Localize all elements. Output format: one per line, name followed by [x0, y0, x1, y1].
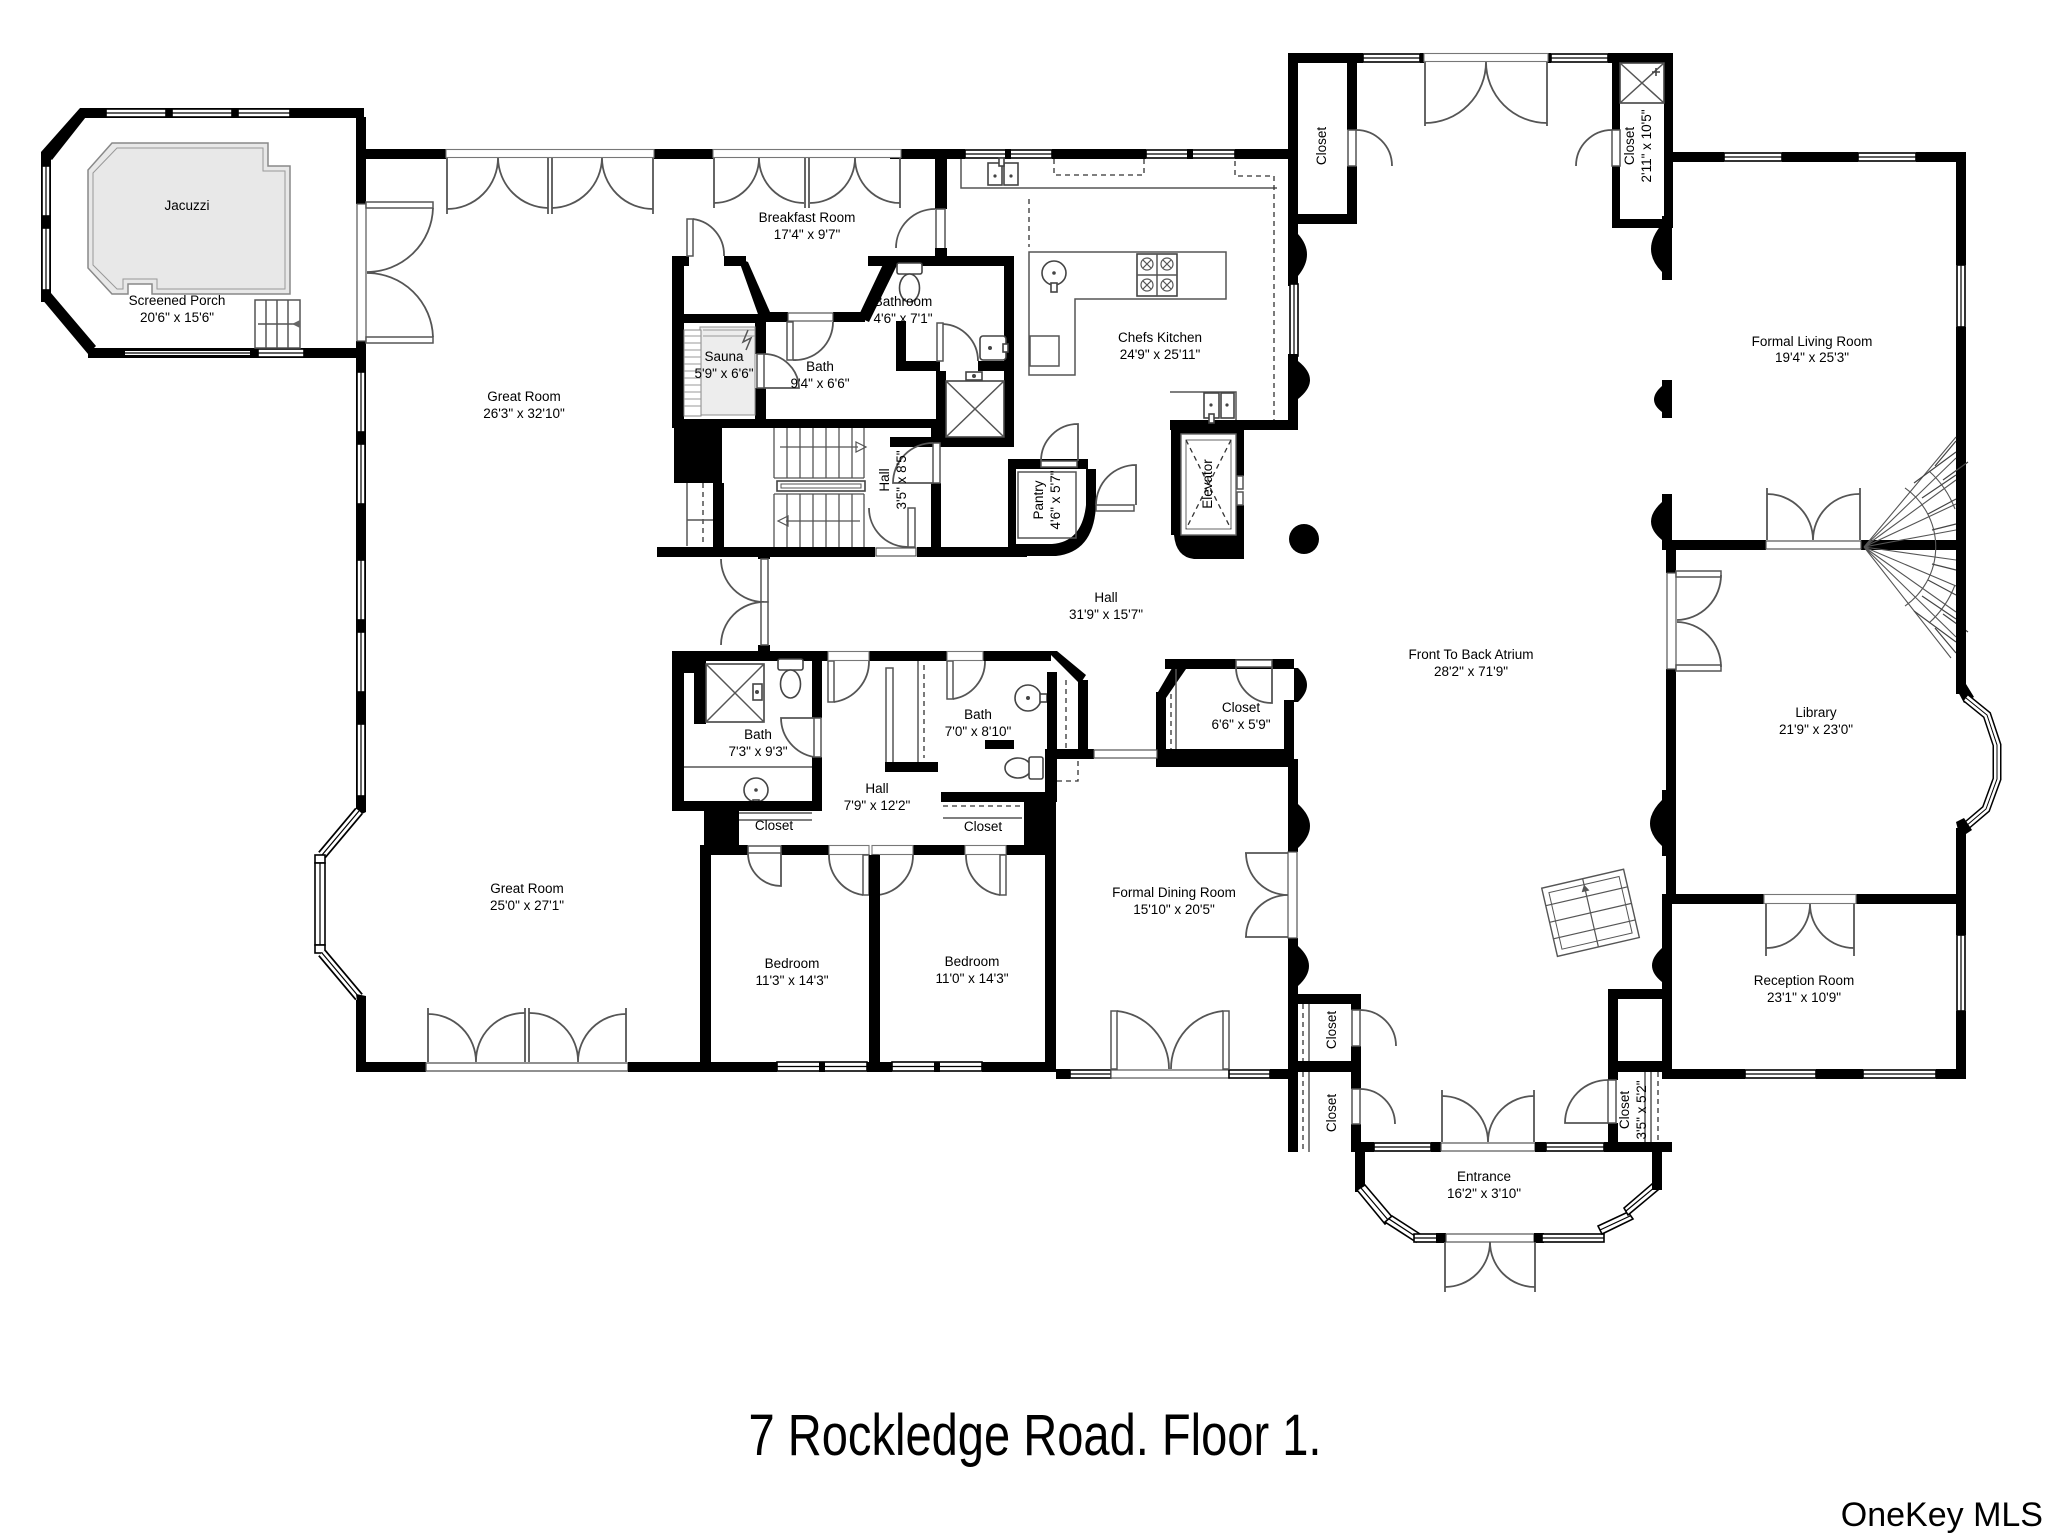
svg-text:Sauna: Sauna — [704, 349, 744, 364]
svg-text:Great Room: Great Room — [490, 881, 564, 896]
svg-text:Chefs Kitchen: Chefs Kitchen — [1118, 330, 1202, 345]
svg-text:4'6" x 7'1": 4'6" x 7'1" — [873, 311, 932, 326]
svg-text:Bedroom: Bedroom — [765, 956, 820, 971]
svg-text:Hall: Hall — [865, 781, 888, 796]
svg-text:20'6" x 15'6": 20'6" x 15'6" — [140, 310, 214, 325]
svg-text:Great Room: Great Room — [487, 389, 561, 404]
svg-text:Pantry: Pantry — [1031, 480, 1046, 519]
svg-text:Formal Living Room: Formal Living Room — [1752, 334, 1873, 349]
svg-text:Front To Back Atrium: Front To Back Atrium — [1408, 647, 1533, 662]
svg-text:5'9" x 6'6": 5'9" x 6'6" — [694, 366, 753, 381]
svg-text:6'6" x 5'9": 6'6" x 5'9" — [1211, 717, 1270, 732]
svg-text:Closet: Closet — [1617, 1091, 1632, 1130]
svg-text:Closet: Closet — [1324, 1094, 1339, 1133]
svg-text:16'2" x 3'10": 16'2" x 3'10" — [1447, 1186, 1521, 1201]
svg-text:7'9" x 12'2": 7'9" x 12'2" — [844, 798, 911, 813]
svg-text:Formal Dining Room: Formal Dining Room — [1112, 885, 1236, 900]
svg-text:Bath: Bath — [744, 727, 772, 742]
svg-text:Entrance: Entrance — [1457, 1169, 1511, 1184]
svg-text:11'3" x 14'3": 11'3" x 14'3" — [755, 973, 828, 988]
svg-text:Closet: Closet — [964, 819, 1003, 834]
svg-text:Closet: Closet — [755, 818, 794, 833]
svg-text:26'3" x 32'10": 26'3" x 32'10" — [483, 406, 565, 421]
svg-text:OneKey MLS: OneKey MLS — [1841, 1496, 2043, 1534]
svg-text:Bedroom: Bedroom — [945, 954, 1000, 969]
svg-text:Hall: Hall — [1094, 590, 1117, 605]
svg-text:2'11" x 10'5": 2'11" x 10'5" — [1639, 109, 1654, 182]
svg-text:Closet: Closet — [1222, 700, 1261, 715]
svg-text:11'0" x 14'3": 11'0" x 14'3" — [935, 971, 1008, 986]
svg-text:Library: Library — [1795, 705, 1837, 720]
svg-text:Closet: Closet — [1314, 127, 1329, 166]
svg-text:3'5" x 5'2": 3'5" x 5'2" — [1634, 1080, 1649, 1139]
svg-text:25'0" x 27'1": 25'0" x 27'1" — [490, 898, 564, 913]
svg-text:Elevator: Elevator — [1200, 459, 1215, 509]
svg-text:Bath: Bath — [806, 359, 834, 374]
svg-text:Reception Room: Reception Room — [1754, 973, 1855, 988]
svg-text:7 Rockledge Road. Floor 1.: 7 Rockledge Road. Floor 1. — [749, 1403, 1322, 1468]
svg-text:19'4" x 25'3": 19'4" x 25'3" — [1775, 350, 1849, 365]
svg-text:Hall: Hall — [877, 468, 892, 491]
svg-text:Bathroom: Bathroom — [874, 294, 933, 309]
svg-text:24'9" x 25'11": 24'9" x 25'11" — [1120, 347, 1201, 362]
svg-text:31'9" x 15'7": 31'9" x 15'7" — [1069, 607, 1143, 622]
svg-text:21'9" x 23'0": 21'9" x 23'0" — [1779, 722, 1853, 737]
svg-text:9'4" x 6'6": 9'4" x 6'6" — [790, 376, 849, 391]
svg-text:Closet: Closet — [1324, 1011, 1339, 1050]
svg-text:Bath: Bath — [964, 707, 992, 722]
svg-text:17'4" x 9'7": 17'4" x 9'7" — [774, 227, 841, 242]
svg-text:7'3" x 9'3": 7'3" x 9'3" — [728, 744, 787, 759]
svg-text:4'6" x 5'7": 4'6" x 5'7" — [1048, 470, 1063, 529]
svg-text:Breakfast Room: Breakfast Room — [759, 210, 856, 225]
svg-text:Screened Porch: Screened Porch — [129, 293, 226, 308]
svg-text:3'5" x 8'5": 3'5" x 8'5" — [894, 450, 909, 509]
svg-text:15'10" x 20'5": 15'10" x 20'5" — [1133, 902, 1215, 917]
svg-text:7'0" x 8'10": 7'0" x 8'10" — [945, 724, 1012, 739]
svg-text:Closet: Closet — [1622, 127, 1637, 166]
svg-text:28'2" x 71'9": 28'2" x 71'9" — [1434, 664, 1508, 679]
svg-text:23'1" x 10'9": 23'1" x 10'9" — [1767, 990, 1841, 1005]
svg-text:Jacuzzi: Jacuzzi — [164, 198, 209, 213]
